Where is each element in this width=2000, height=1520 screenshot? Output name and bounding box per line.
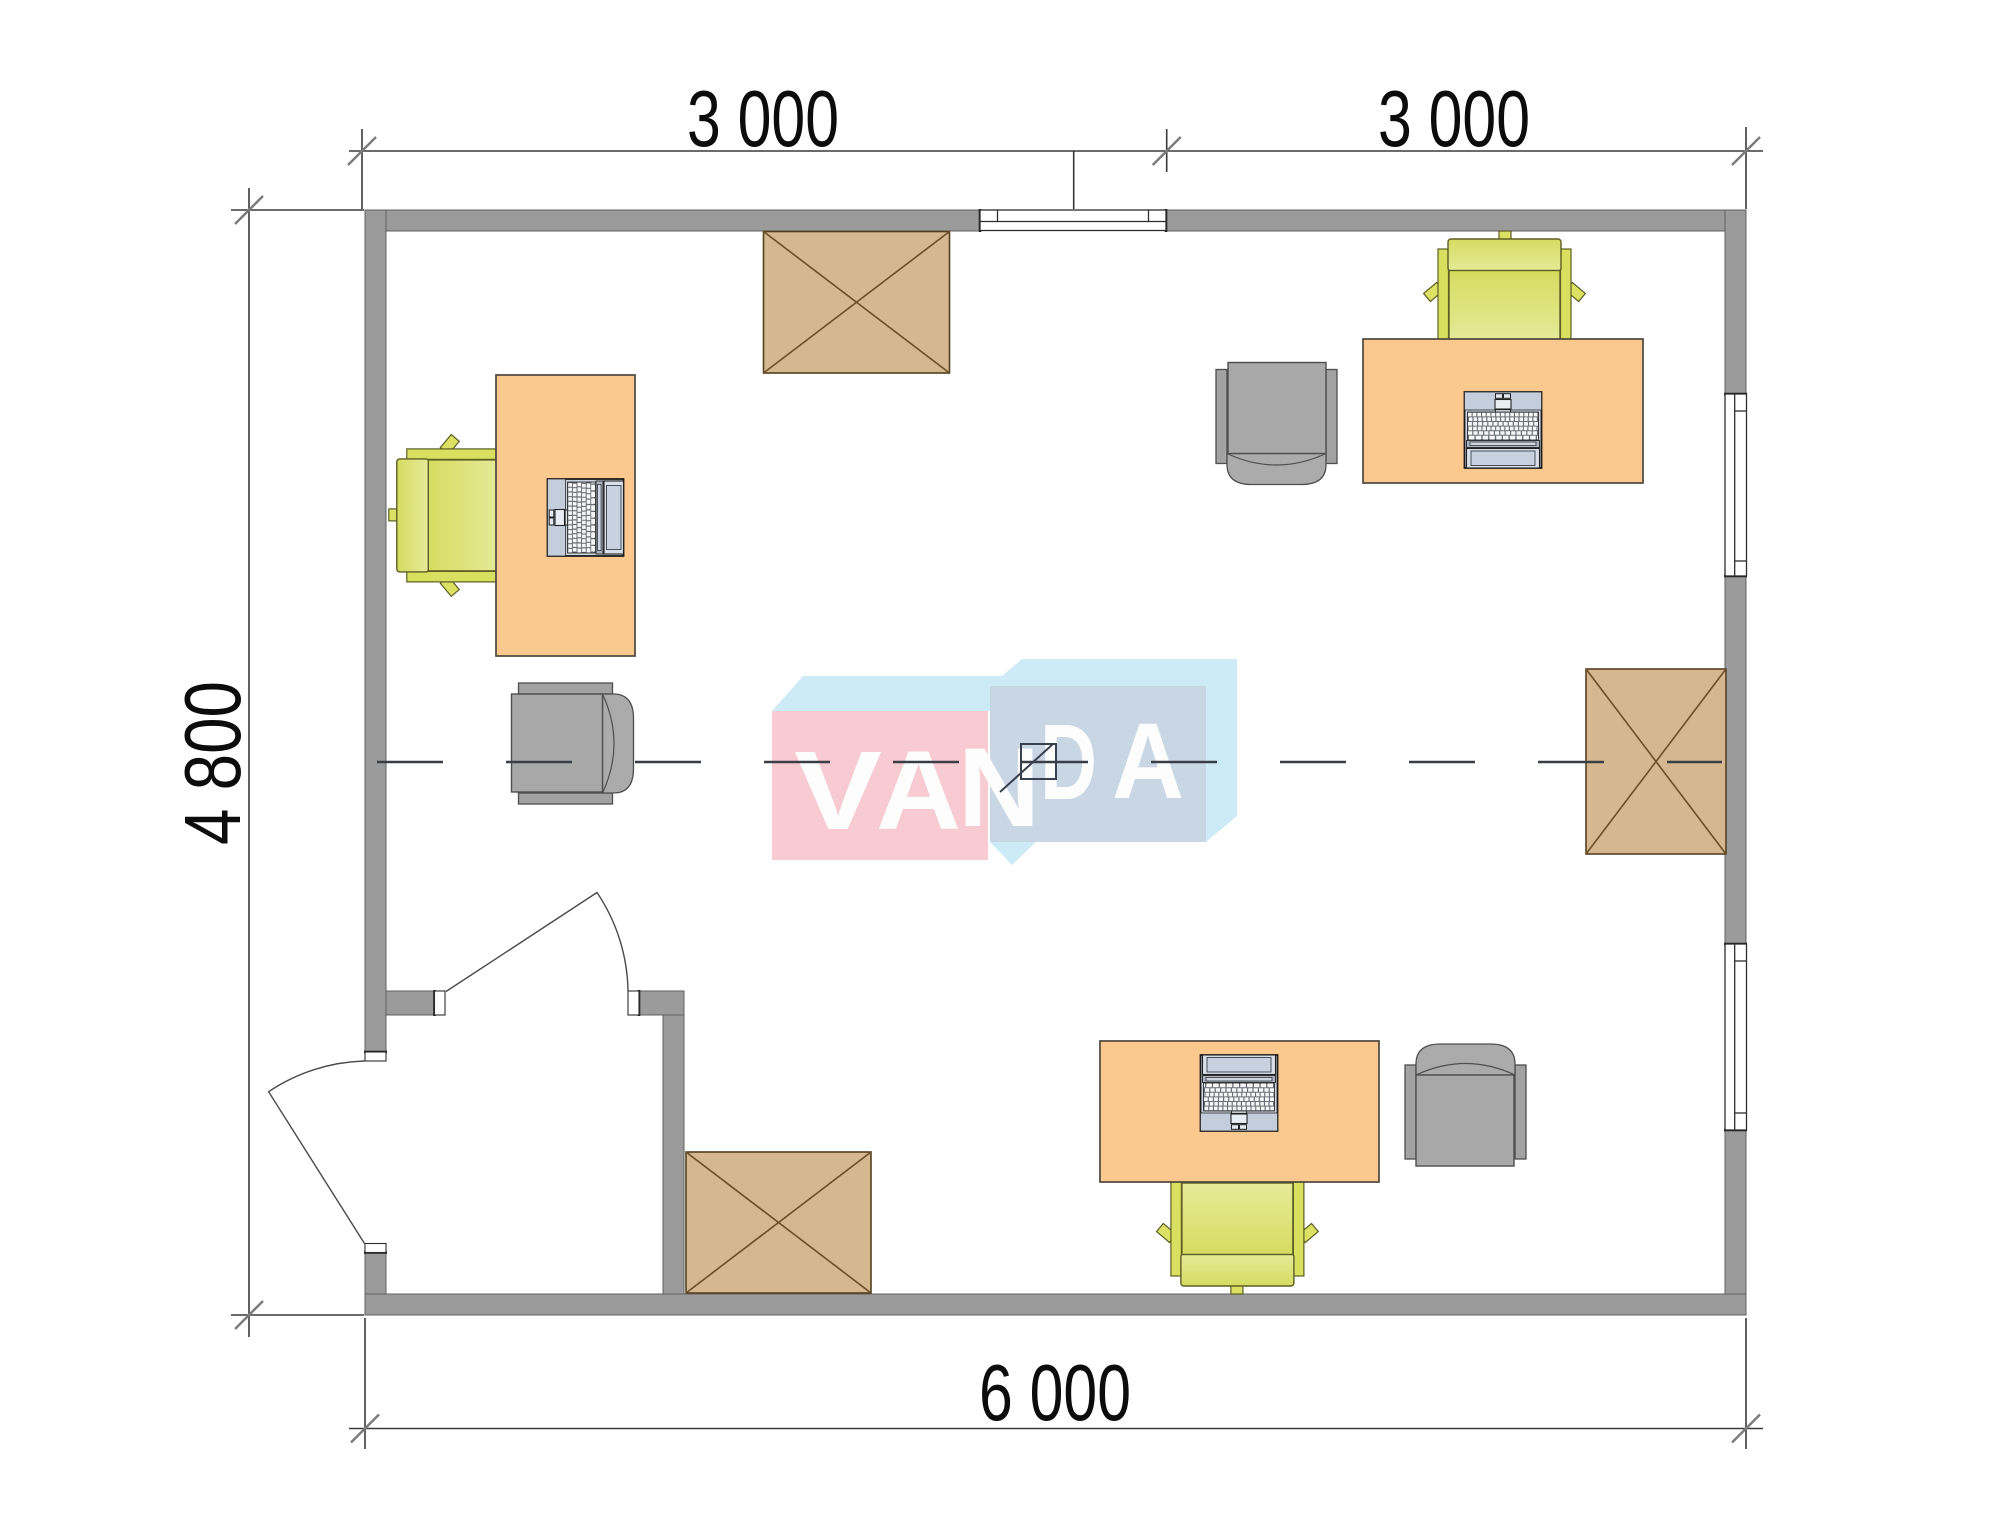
- svg-text:3 000: 3 000: [687, 74, 839, 163]
- svg-text:6 000: 6 000: [979, 1348, 1131, 1437]
- svg-text:A: A: [1112, 700, 1184, 821]
- svg-text:A: A: [876, 728, 961, 853]
- svg-text:4 800: 4 800: [168, 681, 257, 845]
- svg-text:3 000: 3 000: [1378, 74, 1530, 163]
- svg-text:V: V: [794, 728, 882, 853]
